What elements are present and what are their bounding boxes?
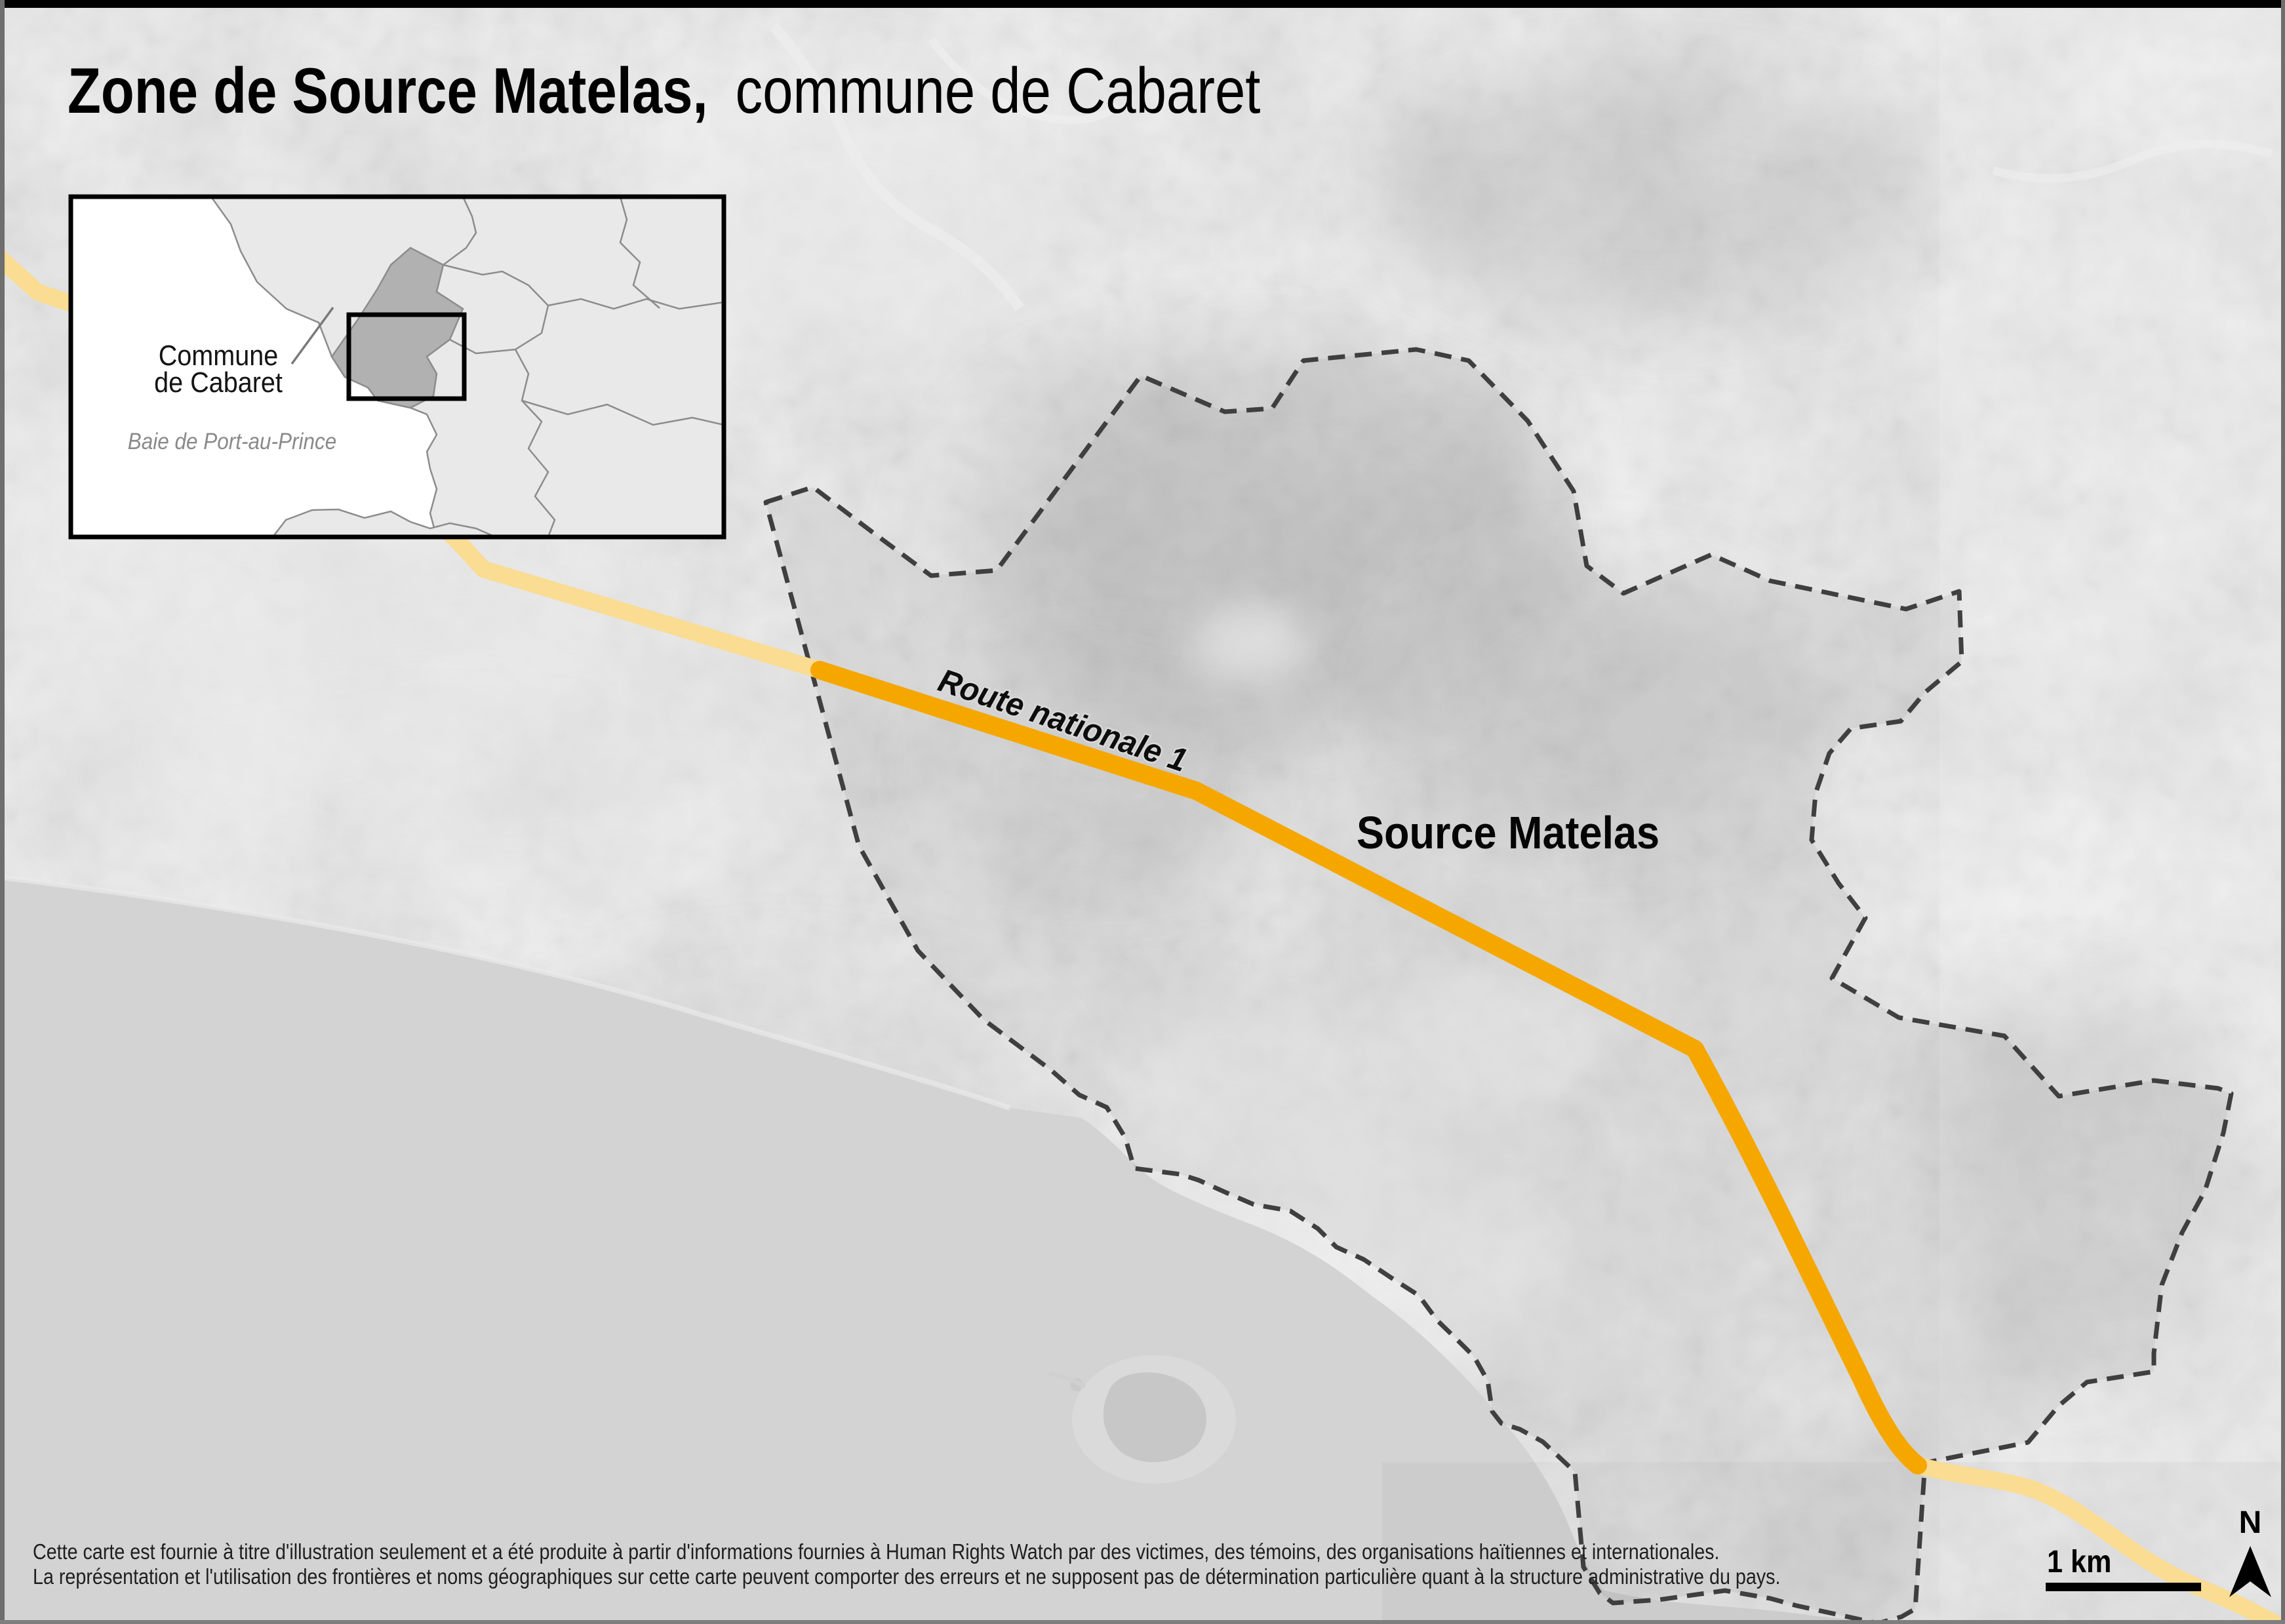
inset-commune-label: Commune de Cabaret — [154, 339, 283, 398]
satellite-map: Route nationale 1 Source Matelas Zone de… — [0, 0, 2285, 1624]
frame-left — [0, 0, 5, 1624]
map-canvas: Route nationale 1 Source Matelas Zone de… — [0, 0, 2285, 1624]
title-group: Zone de Source Matelas, commune de Cabar… — [68, 56, 1260, 127]
frame-bottom — [0, 1620, 2285, 1624]
page-title-regular: commune de Cabaret — [735, 56, 1260, 127]
frame-right — [2281, 0, 2285, 1624]
page-title-bold: Zone de Source Matelas, — [68, 56, 708, 127]
frame-top — [0, 0, 2285, 8]
disclaimer-line1: Cette carte est fournie à titre d'illust… — [33, 1539, 1719, 1564]
inset-map: Commune de Cabaret Baie de Port-au-Princ… — [71, 197, 724, 537]
scale-bar-label: 1 km — [2047, 1544, 2111, 1579]
disclaimer: Cette carte est fournie à titre d'illust… — [33, 1539, 1780, 1589]
scale-bar-rule — [2046, 1583, 2201, 1591]
disclaimer-line2: La représentation et l'utilisation des f… — [33, 1564, 1780, 1589]
inset-commune-label-line2: de Cabaret — [154, 366, 283, 398]
north-label: N — [2239, 1505, 2262, 1540]
zone-label: Source Matelas — [1357, 808, 1659, 859]
inset-bay-label: Baie de Port-au-Prince — [128, 429, 337, 455]
page-title: Zone de Source Matelas, commune de Cabar… — [68, 56, 1260, 127]
